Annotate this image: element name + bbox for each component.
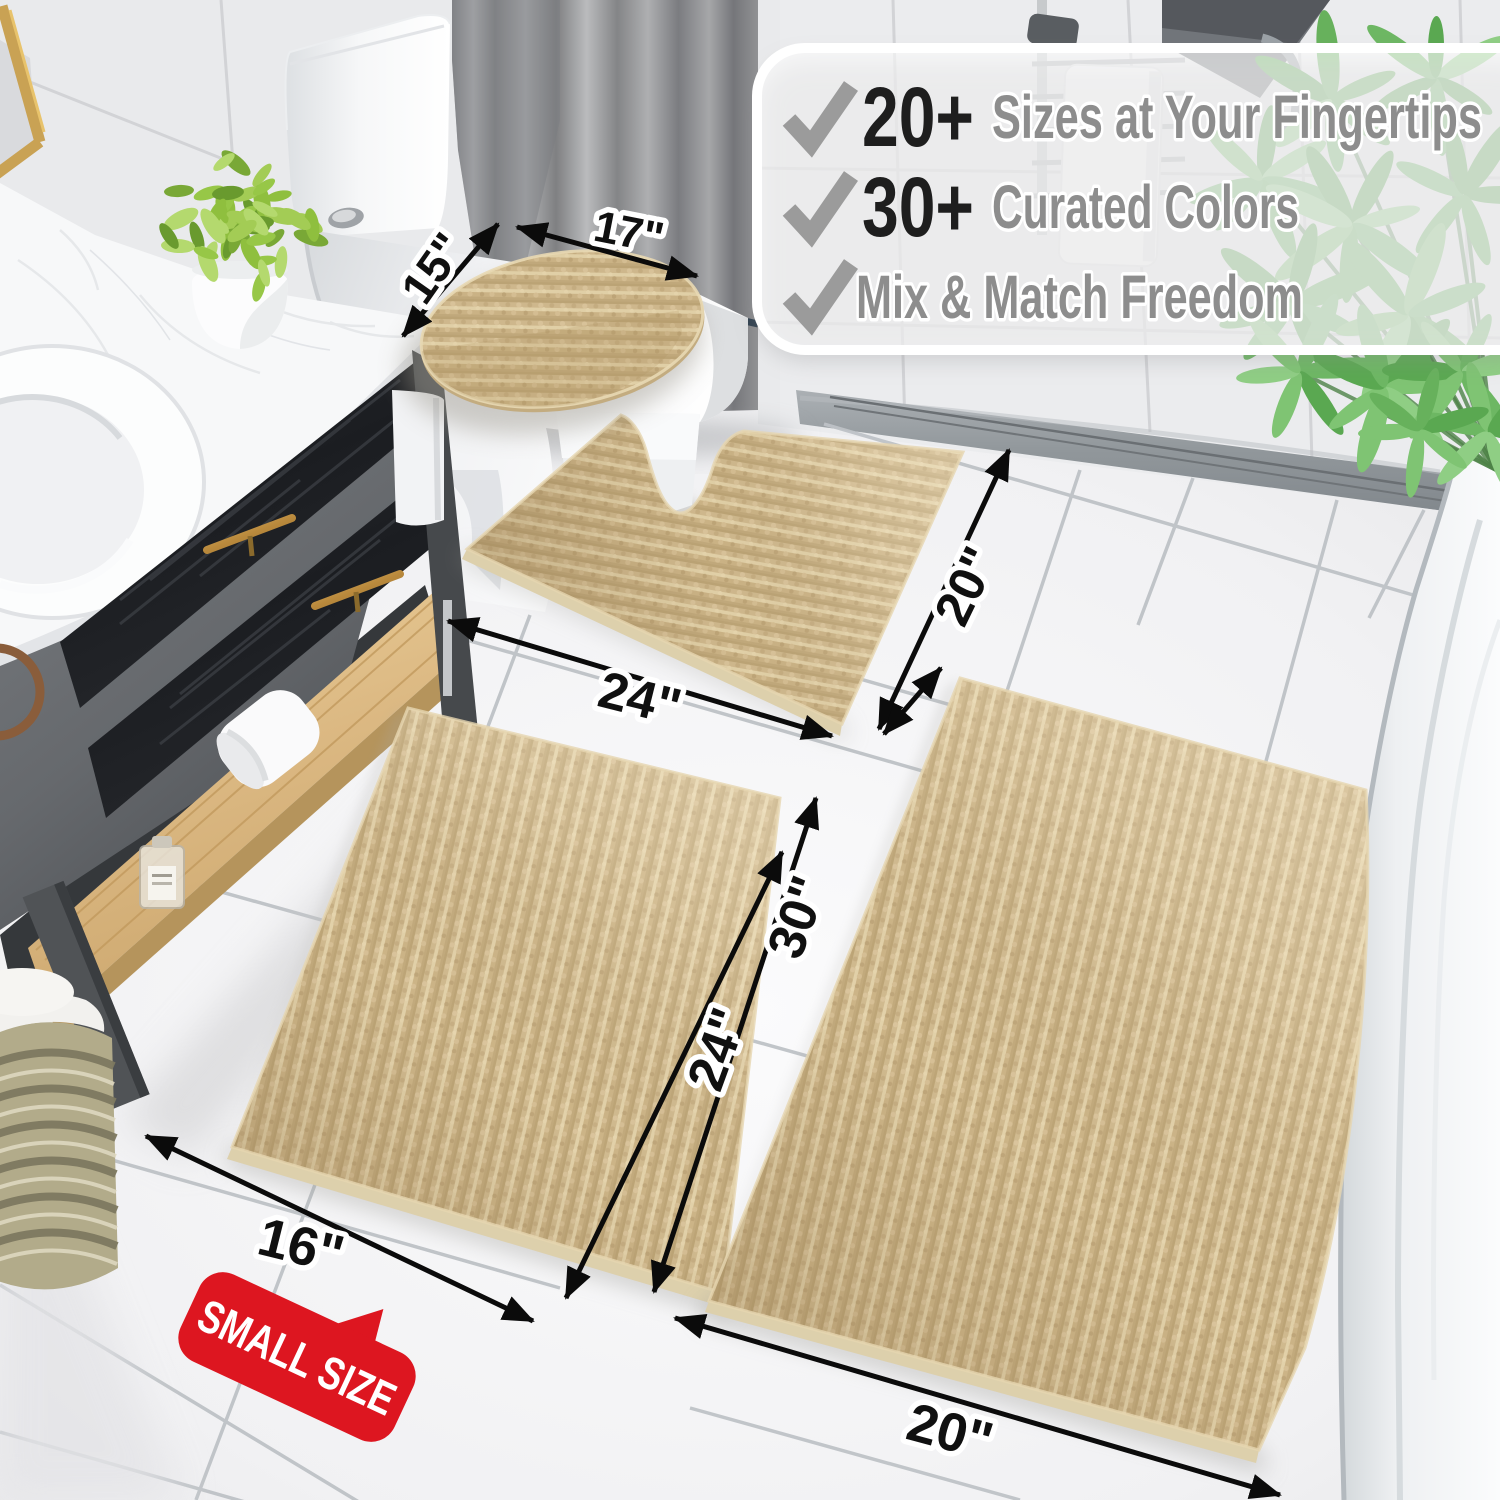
svg-text:30+: 30+ [862, 160, 974, 254]
svg-text:Curated Colors: Curated Colors [992, 173, 1299, 241]
svg-text:Mix & Match Freedom: Mix & Match Freedom [856, 263, 1303, 331]
svg-text:Sizes at Your Fingertips: Sizes at Your Fingertips [992, 83, 1482, 151]
svg-text:20+: 20+ [862, 70, 974, 164]
